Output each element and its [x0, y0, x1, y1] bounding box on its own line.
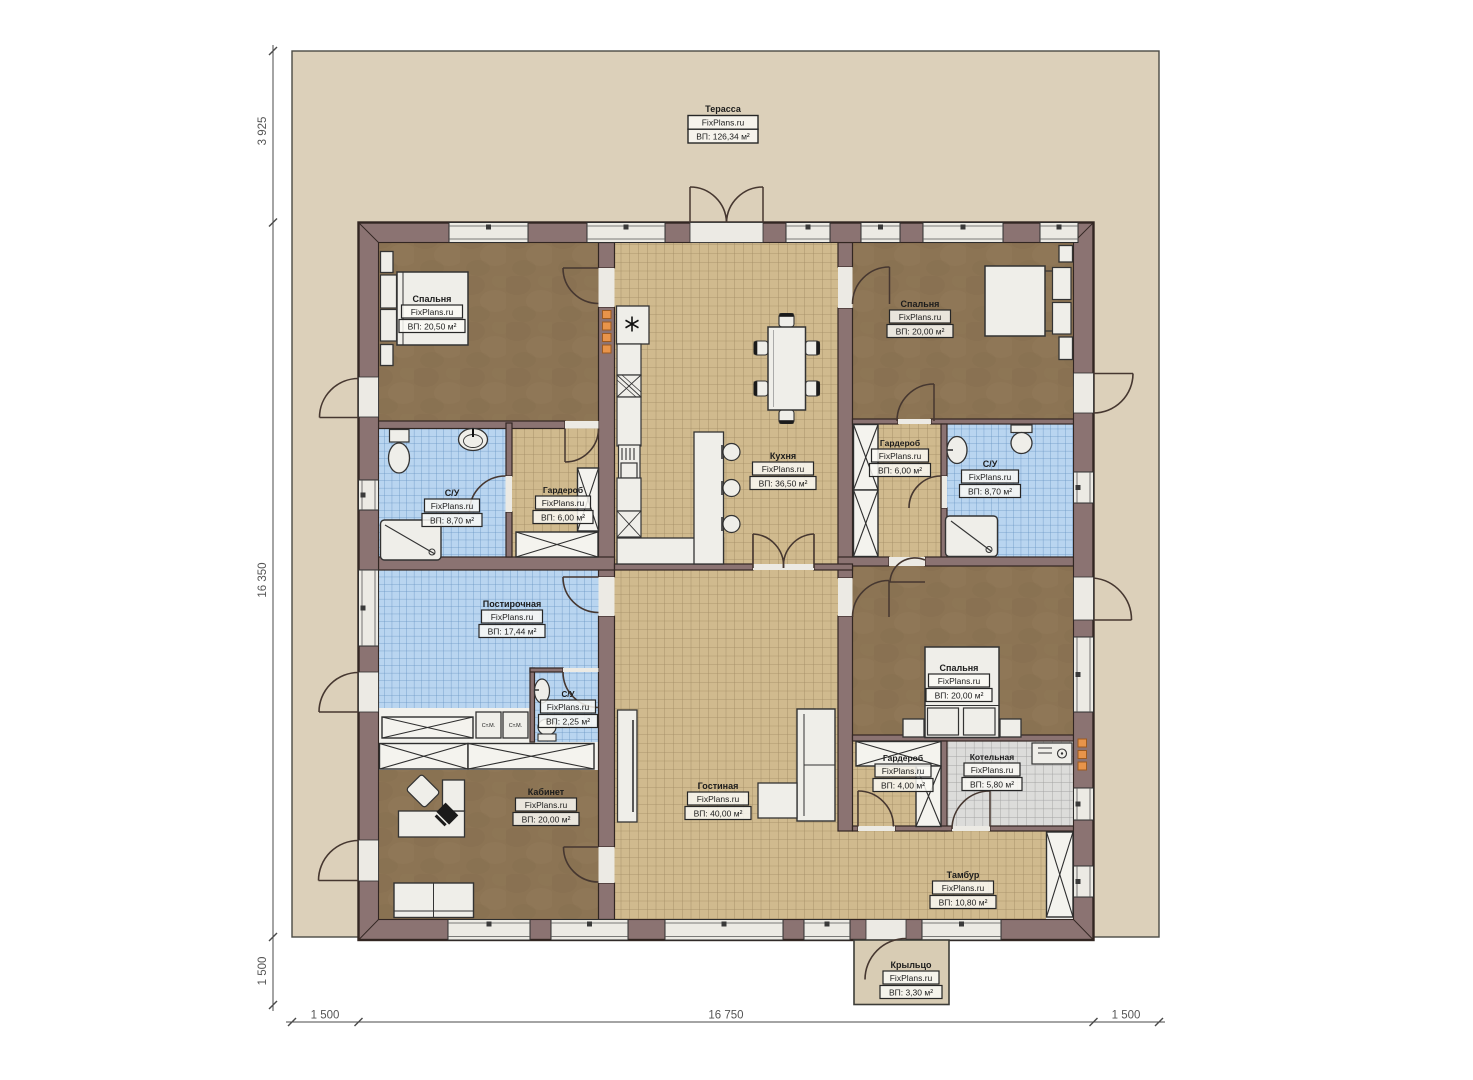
svg-text:FixPlans.ru: FixPlans.ru — [971, 765, 1014, 775]
svg-text:FixPlans.ru: FixPlans.ru — [890, 973, 933, 983]
svg-text:Спальня: Спальня — [413, 294, 452, 304]
svg-text:ВП: 8,70 м²: ВП: 8,70 м² — [430, 516, 474, 526]
svg-text:Постирочная: Постирочная — [483, 599, 541, 609]
svg-text:ВП: 20,00 м²: ВП: 20,00 м² — [522, 815, 571, 825]
svg-text:ВП: 20,00 м²: ВП: 20,00 м² — [896, 327, 945, 337]
svg-text:ВП: 17,44 м²: ВП: 17,44 м² — [488, 627, 537, 637]
svg-text:Гостиная: Гостиная — [698, 781, 739, 791]
svg-text:Кабинет: Кабинет — [528, 787, 565, 797]
svg-text:1 500: 1 500 — [311, 1010, 340, 1022]
svg-text:Ст.М.: Ст.М. — [509, 723, 523, 729]
svg-text:FixPlans.ru: FixPlans.ru — [491, 612, 534, 622]
svg-text:ВП: 20,00 м²: ВП: 20,00 м² — [935, 691, 984, 701]
svg-text:16 350: 16 350 — [257, 562, 269, 597]
svg-text:1 500: 1 500 — [257, 957, 269, 986]
svg-text:Гардероб: Гардероб — [543, 485, 583, 495]
svg-text:ВП: 5,80 м²: ВП: 5,80 м² — [970, 780, 1014, 790]
svg-text:ВП: 10,80 м²: ВП: 10,80 м² — [939, 898, 988, 908]
svg-text:ВП: 6,00 м²: ВП: 6,00 м² — [878, 466, 922, 476]
svg-text:FixPlans.ru: FixPlans.ru — [969, 472, 1012, 482]
svg-text:FixPlans.ru: FixPlans.ru — [938, 676, 981, 686]
svg-text:FixPlans.ru: FixPlans.ru — [879, 451, 922, 461]
svg-text:ВП: 126,34 м²: ВП: 126,34 м² — [696, 132, 750, 142]
svg-text:FixPlans.ru: FixPlans.ru — [411, 307, 454, 317]
svg-text:Терасса: Терасса — [705, 104, 742, 114]
svg-text:FixPlans.ru: FixPlans.ru — [431, 501, 474, 511]
svg-text:3 925: 3 925 — [257, 117, 269, 146]
svg-text:Спальня: Спальня — [940, 663, 979, 673]
svg-text:С/У: С/У — [983, 459, 998, 469]
svg-text:FixPlans.ru: FixPlans.ru — [942, 883, 985, 893]
svg-text:Крыльцо: Крыльцо — [891, 960, 932, 970]
svg-text:FixPlans.ru: FixPlans.ru — [547, 702, 590, 712]
svg-text:FixPlans.ru: FixPlans.ru — [899, 312, 942, 322]
svg-text:С/У: С/У — [445, 488, 460, 498]
svg-text:ВП: 8,70 м²: ВП: 8,70 м² — [968, 487, 1012, 497]
svg-text:FixPlans.ru: FixPlans.ru — [542, 498, 585, 508]
svg-text:FixPlans.ru: FixPlans.ru — [702, 118, 745, 128]
svg-text:Ст.М.: Ст.М. — [482, 723, 496, 729]
svg-text:FixPlans.ru: FixPlans.ru — [525, 800, 568, 810]
svg-text:ВП: 3,30 м²: ВП: 3,30 м² — [889, 988, 933, 998]
svg-text:Спальня: Спальня — [901, 299, 940, 309]
svg-text:Котельная: Котельная — [970, 752, 1015, 762]
svg-text:16 750: 16 750 — [708, 1010, 743, 1022]
svg-text:Тамбур: Тамбур — [947, 870, 980, 880]
svg-text:FixPlans.ru: FixPlans.ru — [697, 794, 740, 804]
svg-text:Гардероб: Гардероб — [883, 753, 923, 763]
svg-text:С/У: С/У — [562, 690, 576, 699]
svg-text:ВП: 36,50 м²: ВП: 36,50 м² — [759, 479, 808, 489]
svg-text:FixPlans.ru: FixPlans.ru — [762, 464, 805, 474]
svg-text:1 500: 1 500 — [1112, 1010, 1141, 1022]
svg-text:ВП: 40,00 м²: ВП: 40,00 м² — [694, 809, 743, 819]
svg-text:ВП: 6,00 м²: ВП: 6,00 м² — [541, 513, 585, 523]
svg-text:Кухня: Кухня — [770, 451, 796, 461]
svg-text:FixPlans.ru: FixPlans.ru — [882, 766, 925, 776]
svg-text:Гардероб: Гардероб — [880, 438, 920, 448]
svg-text:ВП: 20,50 м²: ВП: 20,50 м² — [408, 322, 457, 332]
svg-text:ВП: 2,25 м²: ВП: 2,25 м² — [546, 717, 590, 727]
svg-text:ВП: 4,00 м²: ВП: 4,00 м² — [881, 781, 925, 791]
